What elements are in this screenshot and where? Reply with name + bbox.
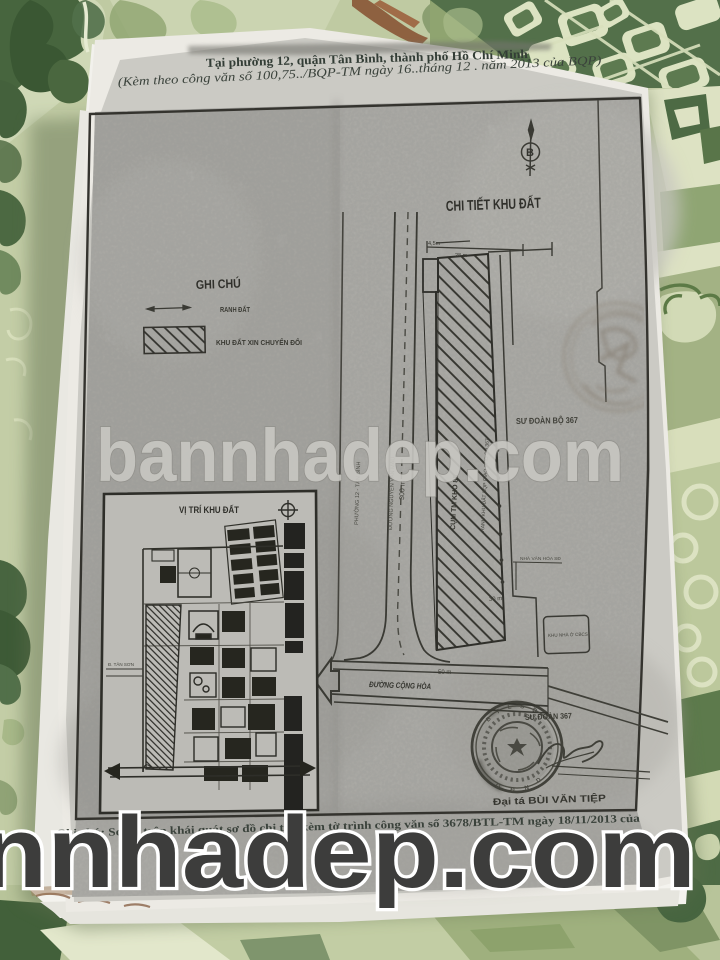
- svg-text:50 m: 50 m: [438, 670, 451, 676]
- svg-text:VỊ TRÍ KHU ĐẤT: VỊ TRÍ KHU ĐẤT: [179, 505, 239, 516]
- svg-text:SƯ ĐOÀN 367: SƯ ĐOÀN 367: [525, 711, 573, 722]
- svg-text:28 m: 28 m: [455, 253, 468, 259]
- svg-text:bannhadep.com: bannhadep.com: [96, 414, 624, 497]
- svg-text:NHÀ VĂN HÓA SĐ: NHÀ VĂN HÓA SĐ: [520, 555, 561, 562]
- svg-text:nnhadep.com: nnhadep.com: [0, 797, 696, 909]
- svg-text:CHI TIẾT KHU ĐẤT: CHI TIẾT KHU ĐẤT: [446, 195, 542, 215]
- svg-text:Đ. TÂN SƠN: Đ. TÂN SƠN: [108, 661, 134, 667]
- svg-text:30 m: 30 m: [489, 596, 503, 603]
- svg-text:KHU ĐẤT XIN CHUYỂN ĐỔI: KHU ĐẤT XIN CHUYỂN ĐỔI: [216, 337, 302, 347]
- svg-text:B: B: [526, 147, 534, 159]
- svg-text:4,5m: 4,5m: [428, 241, 441, 247]
- svg-text:GHI CHÚ: GHI CHÚ: [196, 275, 241, 292]
